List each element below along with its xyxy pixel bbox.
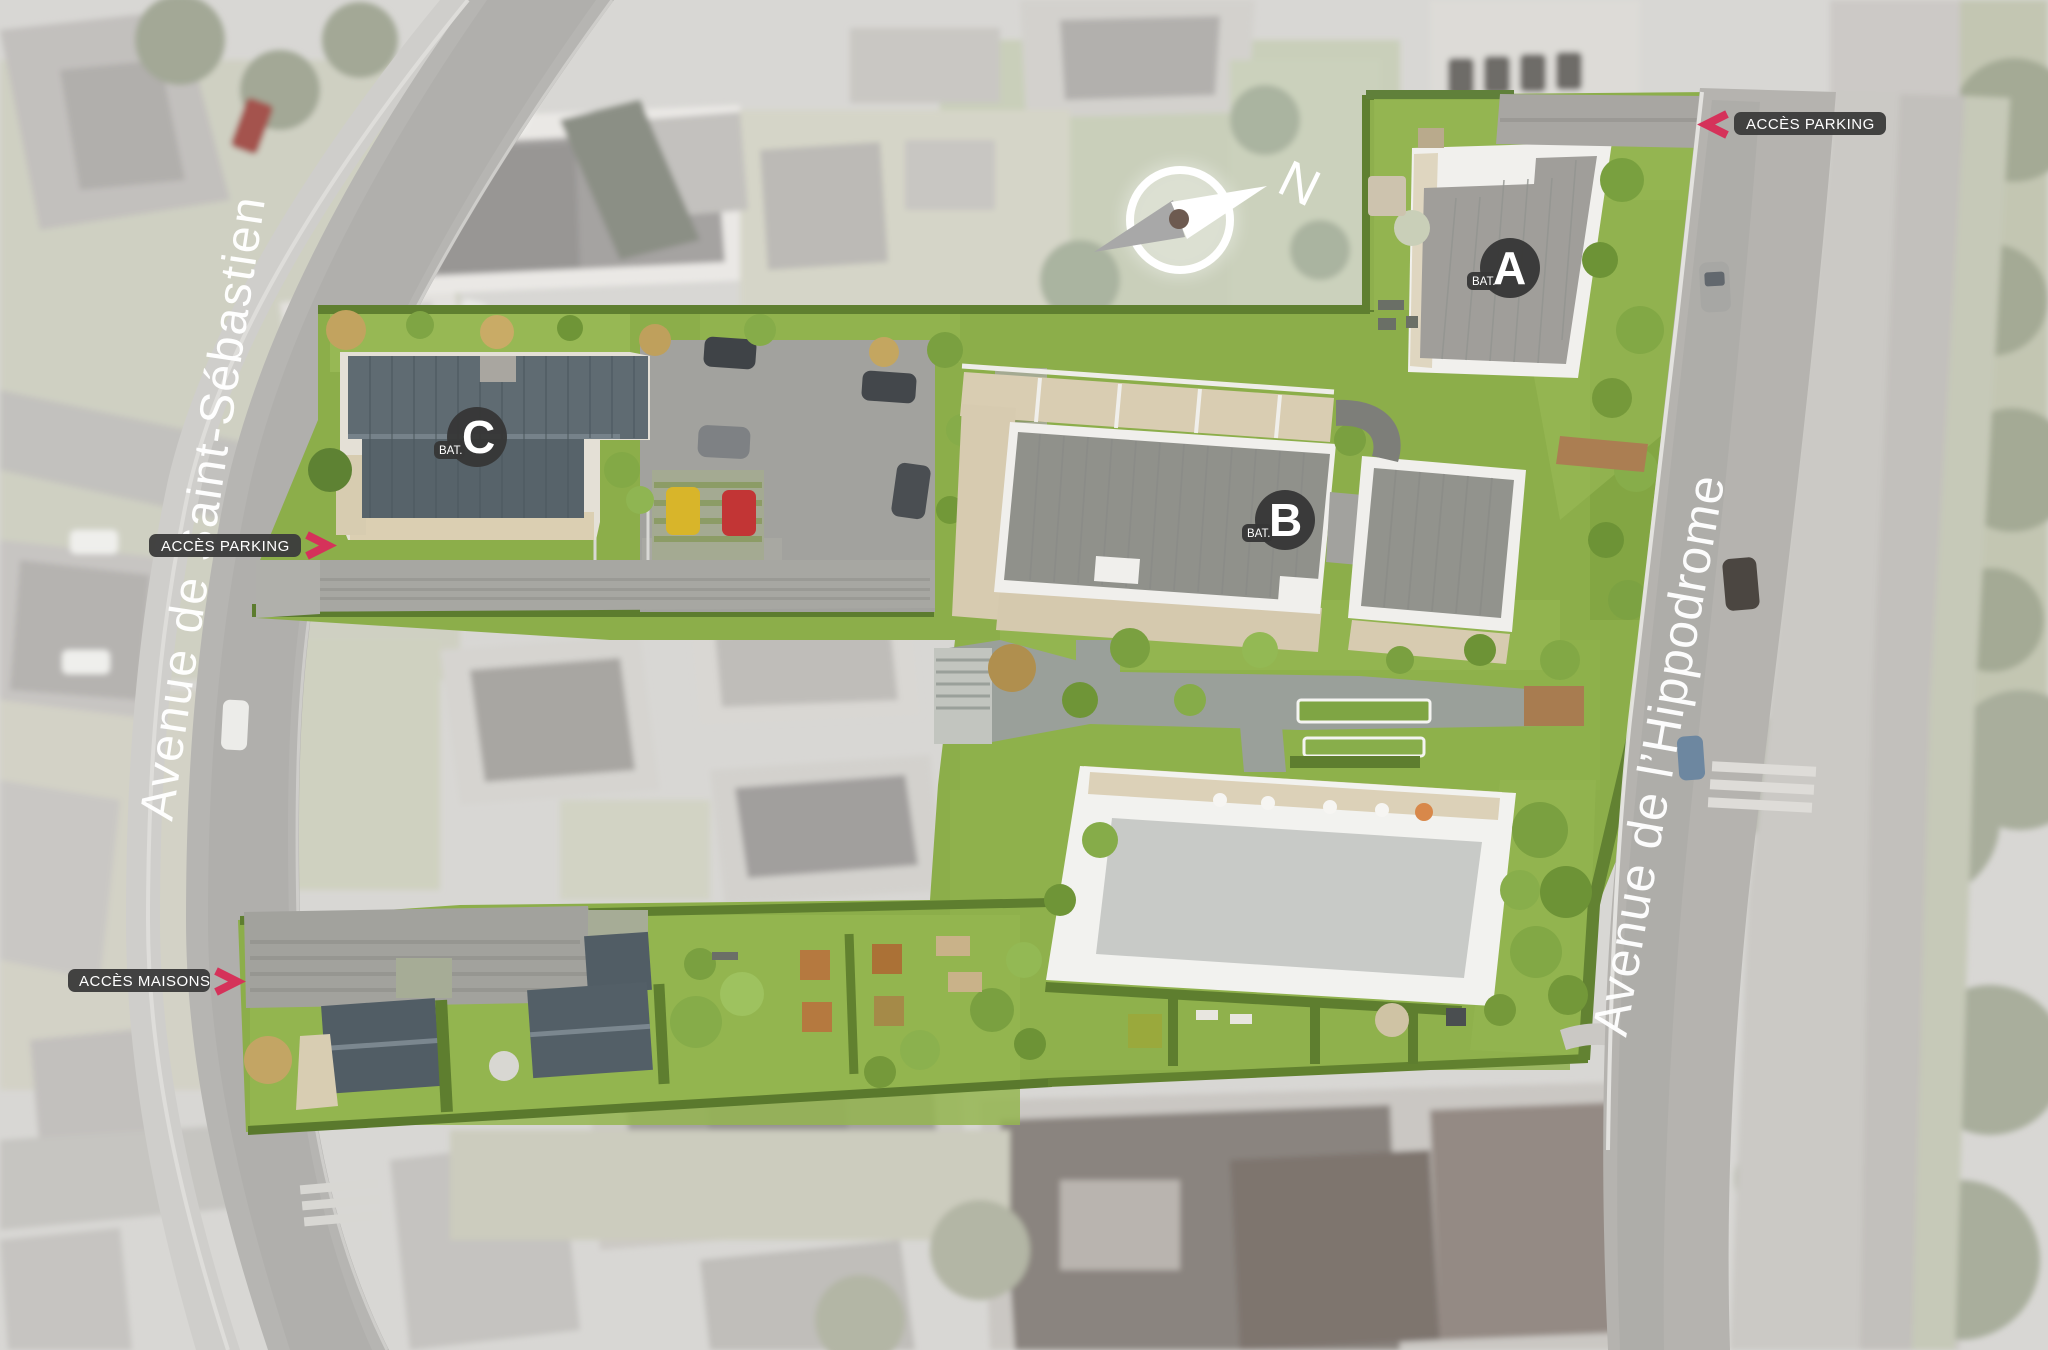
svg-text:BAT.: BAT.: [439, 445, 462, 457]
svg-text:BAT.: BAT.: [1472, 276, 1495, 288]
svg-text:ACCÈS PARKING: ACCÈS PARKING: [161, 538, 290, 555]
svg-text:B: B: [1269, 494, 1302, 546]
svg-text:ACCÈS PARKING: ACCÈS PARKING: [1746, 116, 1875, 133]
svg-text:C: C: [462, 411, 495, 463]
svg-text:ACCÈS MAISONS: ACCÈS MAISONS: [79, 973, 211, 990]
svg-text:BAT.: BAT.: [1247, 528, 1270, 540]
svg-text:A: A: [1493, 242, 1526, 294]
